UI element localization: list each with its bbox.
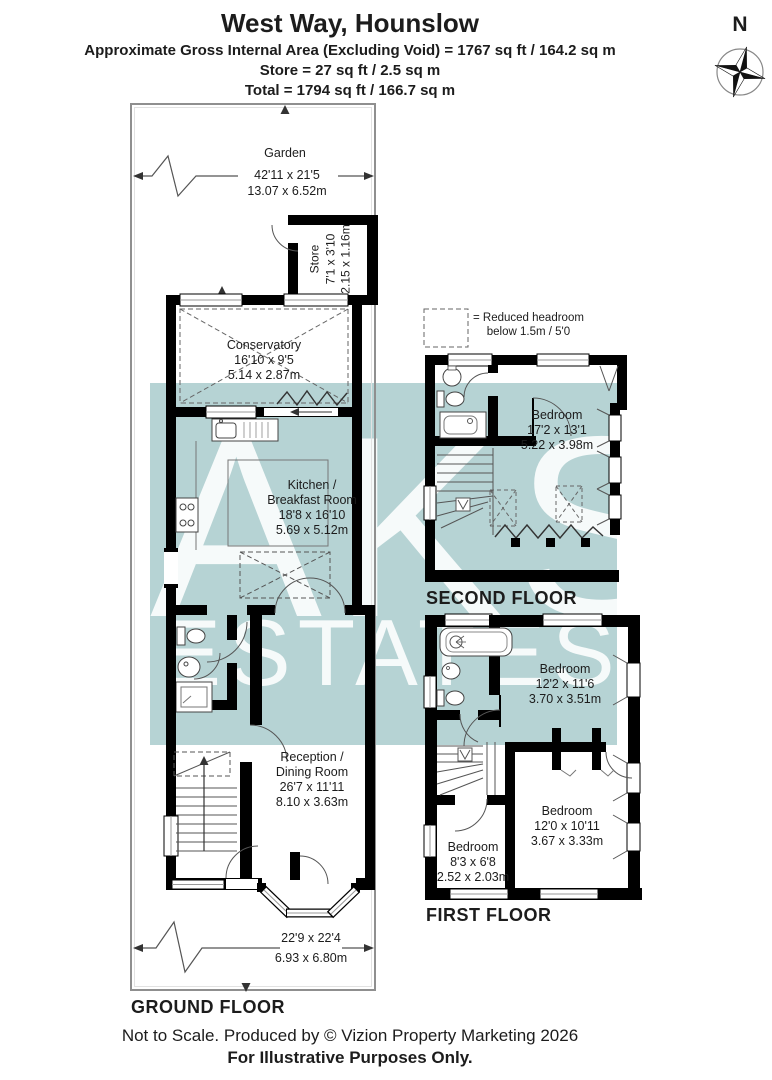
kitchen-dim-metric: 5.69 x 5.12m — [267, 523, 357, 538]
reception-dim-metric: 8.10 x 3.63m — [276, 795, 348, 810]
area-line-3: Total = 1794 sq ft / 166.7 sq m — [0, 81, 700, 101]
bedroom-middle-dim-imperial: 12'0 x 10'11 — [531, 819, 603, 834]
kitchen-name-line2: Breakfast Room — [267, 493, 357, 508]
garden-dim-metric: 13.07 x 6.52m — [247, 184, 326, 198]
room-label-bedroom-middle: Bedroom 12'0 x 10'11 3.67 x 3.33m — [531, 804, 603, 849]
bedroom-small-dim-metric: 2.52 x 2.03m — [437, 870, 509, 885]
bedroom-front-name: Bedroom — [529, 662, 601, 677]
reception-name-line1: Reception / — [276, 750, 348, 765]
store-dim-imperial: 7'1 x 3'10 — [323, 224, 339, 293]
bedroom-small-dim-imperial: 8'3 x 6'8 — [437, 855, 509, 870]
room-label-bedroom-2f: Bedroom 17'2 x 13'1 5.22 x 3.98m — [521, 408, 593, 453]
kitchen-dim-imperial: 18'8 x 16'10 — [267, 508, 357, 523]
conservatory-name: Conservatory — [227, 338, 301, 353]
area-line-2: Store = 27 sq ft / 2.5 sq m — [0, 61, 700, 81]
front-garden-dim-imperial: 22'9 x 22'4 — [281, 931, 341, 945]
room-label-store: Store 7'1 x 3'10 2.15 x 1.16m — [308, 224, 355, 293]
conservatory-dim-metric: 5.14 x 2.87m — [227, 368, 301, 383]
bedroom-2f-name: Bedroom — [521, 408, 593, 423]
room-label-bedroom-front: Bedroom 12'2 x 11'6 3.70 x 3.51m — [529, 662, 601, 707]
legend-line1: = Reduced headroom — [473, 311, 584, 325]
bedroom-2f-dim-metric: 5.22 x 3.98m — [521, 438, 593, 453]
bedroom-middle-name: Bedroom — [531, 804, 603, 819]
first-floor-label: FIRST FLOOR — [426, 905, 552, 926]
footer-line-1: Not to Scale. Produced by © Vizion Prope… — [0, 1026, 700, 1046]
reception-dim-imperial: 26'7 x 11'11 — [276, 780, 348, 795]
kitchen-name-line1: Kitchen / — [267, 478, 357, 493]
store-dim-metric: 2.15 x 1.16m — [339, 224, 355, 293]
floorplan-page: AKS ESTATES — [0, 0, 772, 1080]
page-title: West Way, Hounslow — [0, 8, 700, 39]
compass-icon — [708, 40, 772, 104]
area-line-1: Approximate Gross Internal Area (Excludi… — [0, 41, 700, 61]
room-label-conservatory: Conservatory 16'10 x 9'5 5.14 x 2.87m — [227, 338, 301, 383]
reception-name-line2: Dining Room — [276, 765, 348, 780]
room-label-kitchen: Kitchen / Breakfast Room 18'8 x 16'10 5.… — [267, 478, 357, 538]
bedroom-middle-dim-metric: 3.67 x 3.33m — [531, 834, 603, 849]
legend-line2: below 1.5m / 5'0 — [473, 325, 584, 339]
second-floor-label: SECOND FLOOR — [426, 588, 577, 609]
room-label-reception: Reception / Dining Room 26'7 x 11'11 8.1… — [276, 750, 348, 810]
garden-dim-imperial: 42'11 x 21'5 — [250, 168, 324, 182]
bedroom-front-dim-metric: 3.70 x 3.51m — [529, 692, 601, 707]
bedroom-2f-dim-imperial: 17'2 x 13'1 — [521, 423, 593, 438]
room-label-garden: Garden — [264, 146, 306, 161]
compass-north-label: N — [732, 13, 747, 37]
ground-floor-label: GROUND FLOOR — [131, 997, 285, 1018]
bedroom-front-dim-imperial: 12'2 x 11'6 — [529, 677, 601, 692]
store-name: Store — [308, 224, 324, 293]
front-garden-dim-metric: 6.93 x 6.80m — [275, 951, 347, 965]
legend: = Reduced headroom below 1.5m / 5'0 — [473, 311, 584, 340]
footer-line-2: For Illustrative Purposes Only. — [0, 1048, 700, 1068]
room-label-bedroom-small: Bedroom 8'3 x 6'8 2.52 x 2.03m — [437, 840, 509, 885]
conservatory-dim-imperial: 16'10 x 9'5 — [227, 353, 301, 368]
bedroom-small-name: Bedroom — [437, 840, 509, 855]
